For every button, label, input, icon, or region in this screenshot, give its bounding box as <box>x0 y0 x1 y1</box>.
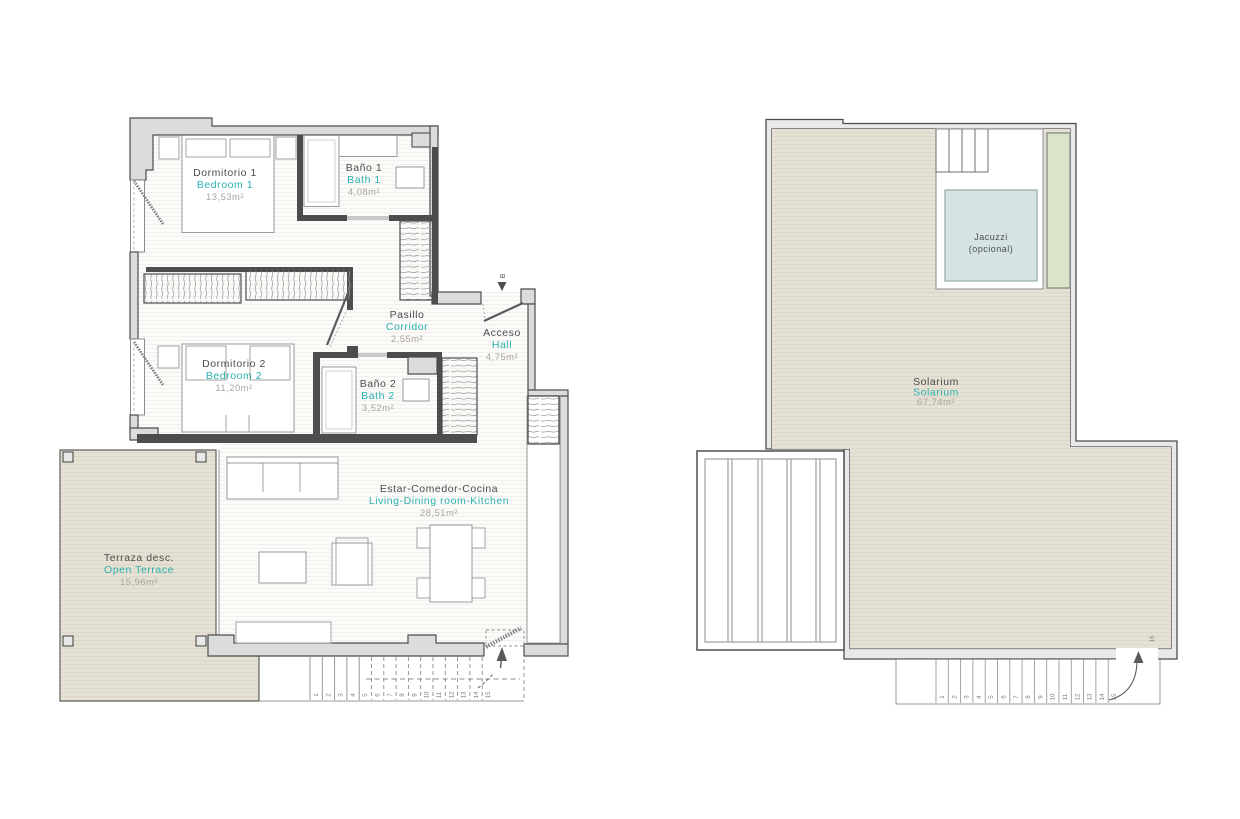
svg-text:Pasillo: Pasillo <box>390 309 425 321</box>
svg-text:Open Terrace: Open Terrace <box>104 564 174 576</box>
svg-text:15,96m²: 15,96m² <box>120 576 158 587</box>
svg-text:2,55m²: 2,55m² <box>391 333 423 344</box>
svg-text:4: 4 <box>976 695 983 699</box>
svg-text:6: 6 <box>375 693 382 697</box>
svg-text:67,74m²: 67,74m² <box>917 396 955 407</box>
svg-text:14: 14 <box>473 691 480 698</box>
svg-text:11: 11 <box>1062 693 1069 700</box>
svg-text:14: 14 <box>1099 693 1106 700</box>
svg-text:Acceso: Acceso <box>483 327 521 339</box>
svg-text:4,75m²: 4,75m² <box>486 351 518 362</box>
svg-text:11: 11 <box>436 691 443 698</box>
svg-text:Estar-Comedor-Cocina: Estar-Comedor-Cocina <box>380 483 498 495</box>
svg-text:2: 2 <box>325 693 332 697</box>
svg-text:Baño 1: Baño 1 <box>346 162 383 174</box>
svg-text:5: 5 <box>362 693 369 697</box>
svg-text:28,51m²: 28,51m² <box>420 507 458 518</box>
svg-text:4: 4 <box>350 693 357 697</box>
svg-text:10: 10 <box>1050 693 1057 700</box>
svg-text:2: 2 <box>951 695 958 699</box>
svg-text:Bath 1: Bath 1 <box>347 174 381 186</box>
svg-text:(opcional): (opcional) <box>969 244 1014 254</box>
svg-text:B: B <box>500 273 507 278</box>
svg-text:Corridor: Corridor <box>386 321 428 333</box>
svg-text:9: 9 <box>1037 695 1044 699</box>
svg-text:Bedroom 1: Bedroom 1 <box>197 179 253 191</box>
svg-text:4,08m²: 4,08m² <box>348 186 380 197</box>
svg-text:Baño 2: Baño 2 <box>360 378 397 390</box>
svg-text:5: 5 <box>988 695 995 699</box>
svg-text:1: 1 <box>313 693 320 697</box>
svg-text:11,20m²: 11,20m² <box>215 382 252 393</box>
svg-text:12: 12 <box>448 691 455 698</box>
svg-text:7: 7 <box>1013 695 1020 699</box>
svg-text:Dormitorio 2: Dormitorio 2 <box>202 358 266 370</box>
svg-text:7: 7 <box>387 693 394 697</box>
svg-text:13,53m²: 13,53m² <box>206 191 244 202</box>
svg-text:Dormitorio 1: Dormitorio 1 <box>193 167 257 179</box>
svg-text:10: 10 <box>424 691 431 698</box>
svg-text:15: 15 <box>485 691 492 698</box>
svg-text:6: 6 <box>1001 695 1008 699</box>
svg-text:Living-Dining room-Kitchen: Living-Dining room-Kitchen <box>369 495 509 507</box>
svg-text:Hall: Hall <box>492 339 512 351</box>
svg-text:Jacuzzi: Jacuzzi <box>974 232 1008 242</box>
svg-text:13: 13 <box>1087 693 1094 700</box>
svg-text:9: 9 <box>411 693 418 697</box>
svg-text:12: 12 <box>1074 693 1081 700</box>
svg-text:13: 13 <box>461 691 468 698</box>
svg-text:3: 3 <box>338 693 345 697</box>
svg-text:8: 8 <box>1025 695 1032 699</box>
svg-text:1: 1 <box>939 695 946 699</box>
svg-text:3: 3 <box>964 695 971 699</box>
svg-text:Terraza desc.: Terraza desc. <box>104 552 174 564</box>
svg-text:Bath 2: Bath 2 <box>361 390 395 402</box>
svg-text:Bedroom 2: Bedroom 2 <box>206 370 262 382</box>
svg-text:8: 8 <box>399 693 406 697</box>
svg-text:16: 16 <box>1149 635 1156 642</box>
svg-text:3,52m²: 3,52m² <box>362 402 394 413</box>
